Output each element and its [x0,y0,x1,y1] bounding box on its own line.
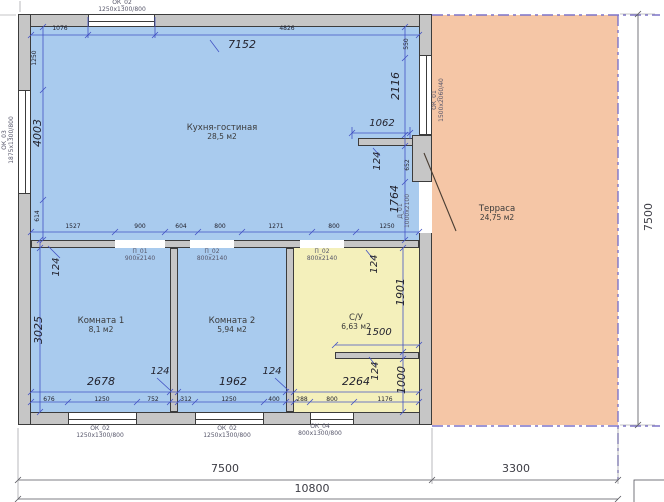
room1-label: Комната 1 8,1 м2 [61,317,141,334]
room2-area-label: 5,94 м2 [192,326,272,334]
window-label-bottom3: ОК_04 800х1300/800 [292,424,348,437]
door-opening-p01 [115,240,165,248]
dim-overall-10800: 10800 [282,483,342,495]
dim-kitchen-124: 124 [373,139,385,183]
door-opening-p02-bathroom [300,240,344,248]
dim-chain-604: 604 [161,224,201,230]
door-opening-d01 [419,182,432,233]
dim-room2-1250: 1250 [211,397,247,403]
wall-pier-right [412,135,432,182]
dim-chain-1250: 1250 [367,224,407,230]
window-label-right: ОК_01 1500х2060/40 [432,65,446,135]
dim-kitchen-left-614: 614 [35,196,45,236]
window-size: 1250х1300/800 [70,433,130,440]
door-size: 900х2140 [110,256,170,263]
dim-bath-1000: 1000 [396,358,408,402]
wall-partition-1 [170,248,178,412]
dim-kitchen-7152: 7152 [220,39,264,51]
dim-kitchen-1062: 1062 [360,119,404,130]
door-size: 800х2140 [292,256,352,263]
dim-kitchen-right-550: 550 [404,24,414,64]
dim-kitchen-1764: 1764 [389,177,401,221]
room2-label: Комната 2 5,94 м2 [192,317,272,334]
window-top-ok02 [88,14,155,27]
window-size: 1500х2060/40 [439,65,446,135]
dim-room2-124: 124 [254,367,290,378]
dim-overall-7500-bottom: 7500 [195,463,255,475]
floor-plan: Кухня-гостиная 28,5 м2 Комната 1 8,1 м2 … [0,0,664,502]
window-label-bottom2: ОК_02 1250х1300/800 [197,426,257,439]
window-label-bottom1: ОК_02 1250х1300/800 [70,426,130,439]
dim-kitchen-top-left: 1076 [38,26,82,32]
kitchen-label: Кухня-гостиная 28,5 м2 [160,124,284,141]
window-bottom-ok02-room1 [68,412,137,425]
dim-kitchen-right-2116: 2116 [390,64,402,108]
dim-room1-wall-124: 124 [52,245,64,289]
wall-partition-2 [286,248,294,412]
dim-room1-676: 676 [31,397,67,403]
door-size: 800х2140 [182,256,242,263]
dim-chain-800a: 800 [200,224,240,230]
window-bottom-ok02-room2 [195,412,264,425]
terrace-area-label: 24,75 м2 [457,214,537,222]
dim-kitchen-left-1250: 1250 [32,38,42,78]
dim-bath-2264: 2264 [334,376,378,388]
window-label-top: ОК_02 1250х1300/800 [92,0,152,13]
dim-bath-1500: 1500 [357,328,401,339]
dim-bath-800: 800 [314,397,350,403]
dim-chain-900: 900 [120,224,160,230]
dim-room2-1962: 1962 [211,376,255,388]
dim-room2-312: 312 [168,397,204,403]
dim-room1-752: 752 [135,397,171,403]
room1-area-label: 8,1 м2 [61,326,141,334]
dim-room1-2678: 2678 [79,376,123,388]
wall-left [18,14,31,425]
dim-room1-1250: 1250 [84,397,120,403]
dim-bath-1901: 1901 [395,270,407,314]
door-opening-p02-room2 [190,240,234,248]
dim-chain-800b: 800 [314,224,354,230]
door-size: 1000х2100 [405,182,412,240]
dim-kitchen-652: 652 [405,145,415,185]
dim-room1-124: 124 [142,367,178,378]
dim-bath-wall-124: 124 [370,242,382,286]
dim-kitchen-top-right: 4826 [265,26,309,32]
dim-overall-3300: 3300 [486,463,546,475]
window-size: 1875х1300/800 [9,105,16,175]
dim-chain-1271: 1271 [256,224,296,230]
window-label-left: ОК_03 1875х1300/800 [2,105,16,175]
door-label-p01: П_01 900х2140 [110,249,170,262]
dim-bath-1176: 1176 [367,397,403,403]
door-label-p02-bathroom: П_02 800х2140 [292,249,352,262]
window-size: 1250х1300/800 [92,7,152,14]
kitchen-area: 28,5 м2 [160,133,284,141]
dim-room1-3025: 3025 [33,308,45,352]
title-block-corner [634,480,664,502]
window-left-ok03 [18,90,31,194]
terrace-label: Терраса 24,75 м2 [457,205,537,222]
dim-kitchen-left-4003: 4003 [32,111,44,155]
window-size: 1250х1300/800 [197,433,257,440]
door-label-p02-room2: П_02 800х2140 [182,249,242,262]
dim-overall-7500-right: 7500 [643,187,655,247]
window-size: 800х1300/800 [292,431,348,438]
dim-chain-1527: 1527 [53,224,93,230]
